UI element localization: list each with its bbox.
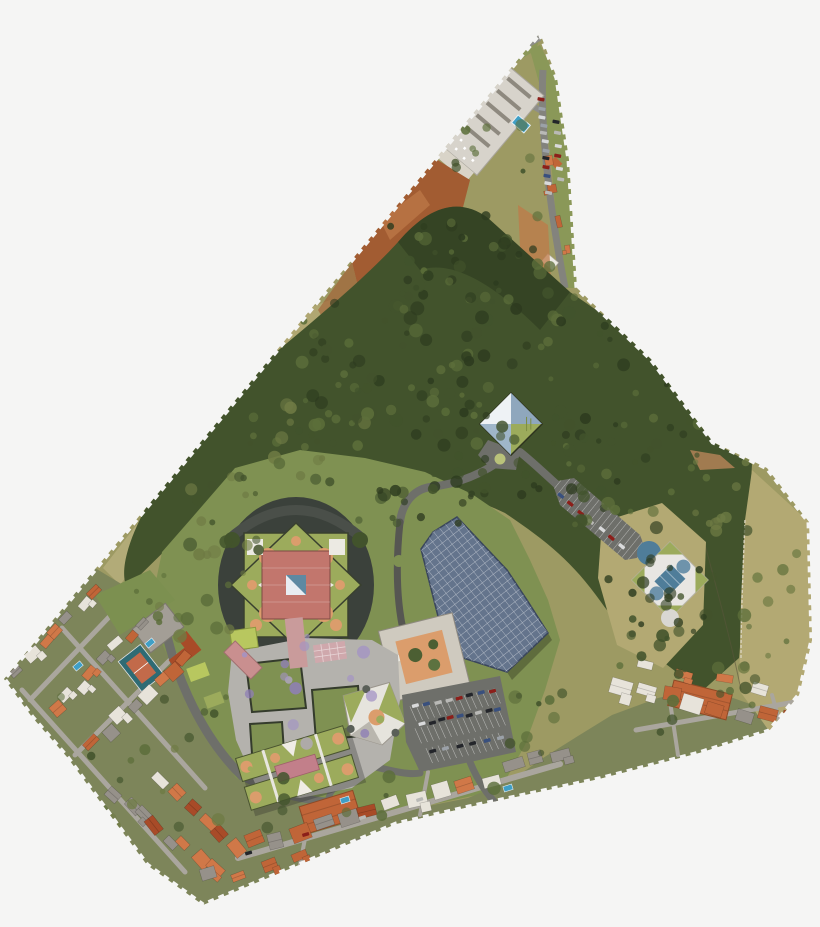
tree: [400, 305, 409, 314]
tree: [296, 471, 305, 480]
tree: [342, 807, 352, 817]
tree: [325, 410, 332, 417]
tree: [353, 355, 365, 367]
tree: [401, 498, 408, 505]
tree: [366, 690, 377, 701]
tree: [212, 813, 225, 826]
tree: [281, 660, 290, 669]
tree: [516, 251, 523, 258]
tree: [184, 733, 194, 743]
tree: [288, 719, 299, 730]
tree: [523, 342, 531, 350]
tree: [510, 303, 522, 315]
tree: [710, 525, 722, 537]
tree: [607, 437, 616, 446]
tree: [577, 465, 585, 473]
tree: [483, 382, 494, 393]
tree: [417, 513, 425, 521]
tree: [303, 398, 308, 403]
tree: [309, 348, 317, 356]
tree: [763, 596, 774, 607]
tree: [418, 232, 432, 246]
tree: [525, 153, 535, 163]
tree: [786, 585, 795, 594]
tree: [469, 145, 476, 152]
tree: [423, 270, 434, 281]
tree: [404, 292, 412, 300]
tree: [507, 358, 518, 369]
tree: [580, 413, 591, 424]
tree: [716, 690, 724, 698]
tree: [593, 363, 599, 369]
tree: [393, 519, 402, 528]
tree: [551, 440, 556, 445]
tree: [400, 291, 406, 297]
tree: [471, 412, 478, 419]
tree: [445, 277, 453, 285]
tree: [749, 702, 756, 709]
tree: [483, 412, 490, 419]
tree: [445, 388, 456, 399]
tree: [352, 414, 362, 424]
tree: [225, 582, 232, 589]
tree: [708, 572, 717, 581]
tree: [479, 482, 490, 493]
tree: [210, 622, 223, 635]
tree: [521, 731, 533, 743]
tree: [489, 242, 499, 252]
tree: [362, 383, 372, 393]
tree: [201, 708, 209, 716]
tree: [296, 356, 309, 369]
tree: [320, 344, 332, 356]
tree: [146, 598, 153, 605]
tree: [240, 570, 246, 576]
tree: [476, 402, 482, 408]
tree: [637, 651, 647, 661]
tree: [777, 564, 788, 575]
tree: [250, 433, 257, 440]
tree: [784, 638, 790, 644]
tree: [382, 318, 388, 324]
tree: [521, 169, 526, 174]
tree: [127, 757, 134, 764]
tree: [532, 258, 543, 269]
tree: [300, 737, 312, 749]
tree: [617, 358, 630, 371]
tree: [459, 393, 464, 398]
tree: [515, 119, 527, 131]
tree: [335, 382, 341, 388]
tree: [196, 516, 206, 526]
tree: [383, 770, 396, 783]
tree: [450, 476, 462, 488]
tree: [253, 491, 258, 496]
tree: [682, 667, 687, 672]
tree: [650, 521, 663, 534]
tree: [498, 237, 511, 250]
tree: [201, 594, 214, 607]
tree: [161, 573, 166, 578]
tree: [329, 440, 336, 447]
tree: [209, 519, 215, 525]
tree: [174, 822, 184, 832]
tree: [738, 662, 750, 674]
tree: [503, 294, 513, 304]
tree: [355, 516, 362, 523]
tree: [274, 458, 286, 470]
tree: [517, 490, 526, 499]
tree: [344, 338, 353, 347]
tree: [529, 245, 537, 253]
tree: [607, 337, 612, 342]
tree: [649, 414, 658, 423]
tree: [87, 752, 95, 760]
tree: [431, 471, 437, 477]
tree: [192, 495, 203, 506]
tree: [667, 565, 673, 571]
tree: [57, 693, 65, 701]
tree: [299, 641, 309, 651]
tree: [607, 462, 613, 468]
tree: [208, 481, 217, 490]
tree: [667, 424, 674, 431]
tree: [613, 422, 618, 427]
tree: [496, 288, 502, 294]
tree: [752, 572, 762, 582]
tree: [314, 439, 320, 445]
tree: [117, 777, 124, 784]
tree: [465, 292, 476, 303]
tree: [242, 652, 247, 657]
tree: [433, 429, 442, 438]
tree: [308, 432, 315, 439]
tree: [667, 714, 678, 725]
tree: [742, 525, 753, 536]
tree: [325, 477, 334, 486]
tree: [601, 469, 612, 480]
tree: [321, 355, 329, 363]
tree: [667, 695, 679, 707]
tree: [616, 662, 623, 669]
tree: [386, 405, 396, 415]
tree: [638, 621, 644, 627]
tree: [461, 351, 472, 362]
tree: [295, 427, 303, 435]
tree: [632, 459, 638, 465]
tree: [171, 745, 179, 753]
tree: [420, 223, 427, 230]
tree: [427, 395, 440, 408]
tree: [139, 744, 150, 755]
tree: [542, 287, 554, 299]
tree: [454, 451, 463, 460]
tree: [441, 408, 450, 417]
tree: [566, 483, 577, 494]
tree: [456, 427, 469, 440]
tree: [305, 634, 310, 639]
tree: [183, 538, 197, 552]
tree: [628, 589, 636, 597]
tree: [732, 482, 741, 491]
tree: [474, 428, 479, 433]
tree: [289, 682, 301, 694]
tree: [384, 793, 389, 798]
tree: [376, 810, 387, 821]
tree: [661, 599, 672, 610]
tree: [514, 458, 524, 468]
tree: [478, 349, 491, 362]
tree: [477, 287, 483, 293]
tree: [411, 429, 422, 440]
tree: [641, 453, 651, 463]
tree: [621, 422, 628, 429]
tree: [390, 485, 401, 496]
tree: [417, 390, 428, 401]
tree: [332, 415, 341, 424]
tree: [712, 662, 725, 675]
tree: [562, 306, 575, 319]
tree: [404, 276, 413, 285]
tree: [357, 646, 370, 659]
tree: [544, 261, 555, 272]
tree: [557, 688, 567, 698]
tree: [262, 822, 274, 834]
tree: [449, 362, 455, 368]
tree: [428, 484, 438, 494]
tree: [253, 545, 264, 556]
tree: [390, 414, 403, 427]
tree: [482, 123, 490, 131]
tree: [330, 299, 339, 308]
tree: [750, 674, 760, 684]
tree: [245, 689, 254, 698]
tree: [404, 256, 415, 267]
tree: [249, 413, 259, 423]
tree: [475, 311, 489, 325]
tree: [538, 750, 544, 756]
tree: [471, 327, 482, 338]
tree: [628, 509, 634, 515]
tree: [726, 687, 734, 695]
tree: [447, 218, 456, 227]
tree: [576, 482, 589, 495]
tree: [480, 292, 491, 303]
tree: [242, 540, 253, 551]
tree: [310, 474, 321, 485]
tree: [160, 695, 169, 704]
tree: [301, 443, 309, 451]
tree: [562, 431, 570, 439]
tree: [219, 535, 232, 548]
tree: [280, 673, 288, 681]
tree: [645, 593, 655, 603]
tree: [694, 453, 699, 458]
tree: [572, 522, 578, 528]
tree: [571, 293, 579, 301]
tree: [629, 615, 637, 623]
tree: [153, 611, 163, 621]
tree: [738, 609, 752, 623]
tree: [242, 492, 249, 499]
aerial-photo-canvas: [0, 0, 820, 927]
tree: [352, 440, 363, 451]
tree: [739, 682, 751, 694]
tree: [535, 485, 542, 492]
tree: [701, 614, 707, 620]
tree: [432, 250, 437, 255]
tree: [234, 472, 244, 482]
tree: [493, 280, 498, 285]
tree: [648, 506, 659, 517]
tree: [340, 370, 348, 378]
tree: [564, 419, 575, 430]
tree: [716, 514, 725, 523]
tree: [278, 793, 290, 805]
tree: [409, 324, 423, 338]
tree: [465, 400, 475, 410]
tree: [696, 566, 703, 573]
tree: [420, 334, 432, 346]
tree: [438, 439, 451, 452]
tree: [543, 337, 553, 347]
tree: [387, 223, 394, 230]
tree: [309, 329, 319, 339]
tree: [632, 390, 639, 397]
tree: [315, 396, 328, 409]
tree: [319, 455, 325, 461]
tree: [566, 461, 571, 466]
tree: [679, 430, 687, 438]
tree: [545, 695, 555, 705]
tree: [496, 421, 508, 433]
tree: [378, 488, 391, 501]
tree: [355, 388, 362, 395]
tree: [361, 407, 374, 420]
tree: [645, 558, 654, 567]
tree: [596, 486, 607, 497]
tree: [516, 693, 522, 699]
tree: [548, 376, 553, 381]
tree: [596, 438, 601, 443]
tree: [601, 322, 609, 330]
tree: [601, 497, 615, 511]
tree: [456, 376, 468, 388]
tree: [664, 636, 669, 641]
tree: [651, 439, 662, 450]
tree: [673, 626, 684, 637]
tree: [454, 260, 466, 272]
tree: [522, 470, 530, 478]
tree: [173, 629, 187, 643]
tree: [703, 474, 711, 482]
tree: [627, 631, 636, 640]
tree: [481, 211, 490, 220]
tree: [538, 344, 545, 351]
tree: [347, 675, 354, 682]
tree: [471, 437, 483, 449]
tree: [536, 701, 541, 706]
tree: [556, 316, 566, 326]
tree: [449, 249, 454, 254]
tree: [278, 805, 288, 815]
tree: [742, 458, 750, 466]
tree: [746, 624, 752, 630]
tree: [688, 464, 695, 471]
tree: [452, 163, 461, 172]
tree: [185, 483, 197, 495]
tree: [567, 471, 573, 477]
tree: [455, 520, 462, 527]
tree: [505, 738, 516, 749]
tree: [277, 772, 289, 784]
tree: [248, 441, 253, 446]
tree: [428, 378, 435, 385]
tree: [548, 712, 560, 724]
tree: [287, 419, 294, 426]
tree: [224, 624, 234, 634]
tree: [127, 799, 137, 809]
tree: [252, 536, 260, 544]
tree: [436, 365, 445, 374]
tree: [792, 549, 801, 558]
tree: [563, 444, 575, 456]
tree: [468, 491, 475, 498]
tree: [478, 468, 487, 477]
tree: [691, 629, 696, 634]
tree: [223, 694, 229, 700]
tree: [173, 613, 183, 623]
tree: [497, 252, 506, 261]
tree: [597, 331, 603, 337]
tree: [408, 384, 415, 391]
tree: [487, 782, 500, 795]
tree: [160, 789, 166, 795]
tree: [210, 709, 219, 718]
tree: [552, 414, 560, 422]
tree: [203, 550, 212, 559]
tree: [693, 459, 698, 464]
tree: [677, 593, 684, 600]
tree: [614, 478, 621, 485]
tree: [312, 418, 325, 431]
aerial-orthophoto: [0, 0, 820, 927]
tree: [134, 589, 139, 594]
tree: [284, 402, 296, 414]
tree: [400, 342, 407, 349]
tree: [668, 488, 675, 495]
tree: [637, 576, 649, 588]
tree: [490, 299, 495, 304]
tree: [692, 510, 699, 517]
tree: [674, 669, 684, 679]
tree: [459, 499, 467, 507]
tree: [367, 373, 377, 383]
tree: [412, 279, 425, 292]
tree: [509, 434, 519, 444]
tree: [765, 653, 771, 659]
tree: [532, 211, 542, 221]
tree: [404, 330, 410, 336]
tree: [579, 433, 588, 442]
tree: [604, 575, 612, 583]
tree: [275, 431, 288, 444]
tree: [423, 415, 430, 422]
tree: [654, 639, 666, 651]
tree: [360, 729, 369, 738]
tree: [458, 234, 465, 241]
tree: [481, 455, 489, 463]
